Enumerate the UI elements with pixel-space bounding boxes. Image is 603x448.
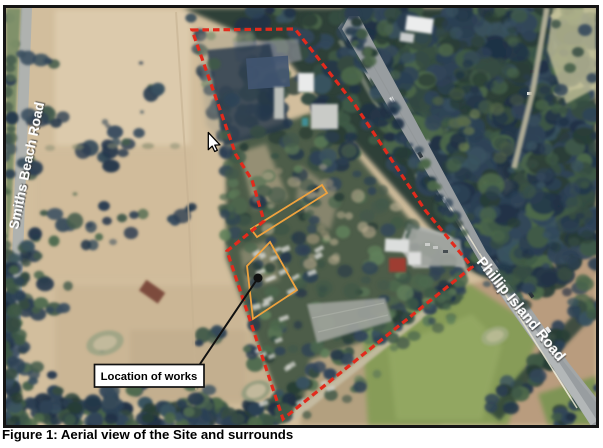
svg-text:Location of works: Location of works (101, 371, 198, 383)
